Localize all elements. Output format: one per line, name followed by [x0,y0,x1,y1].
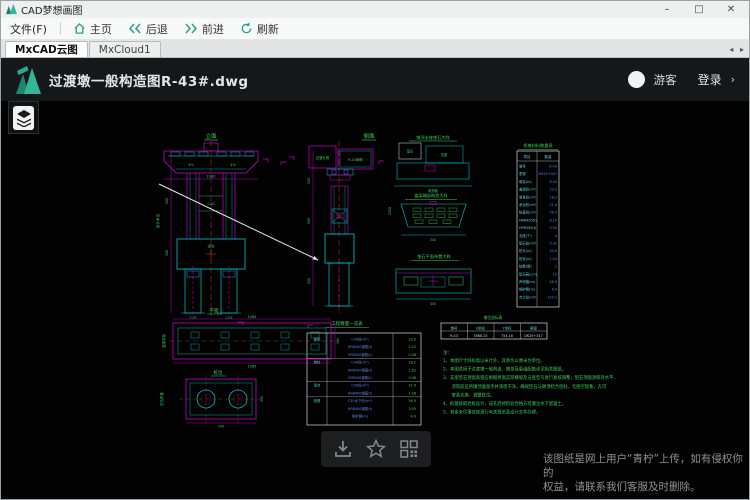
svg-text:X坐标: X坐标 [476,325,486,330]
svg-text:450: 450 [307,278,311,284]
svg-text:里程: 里程 [530,325,537,330]
svg-text:0.32: 0.32 [549,242,557,246]
svg-text:设计水位: 设计水位 [155,213,160,228]
svg-text:1060: 1060 [248,365,257,369]
forward-button[interactable]: 前进 [176,18,232,39]
qrcode-icon [398,438,420,460]
svg-text:盖梁平面: 盖梁平面 [161,334,166,348]
tab-mxcad-cloud[interactable]: MxCAD云图 [5,41,88,57]
refresh-button[interactable]: 刷新 [232,18,287,39]
qrcode-button[interactable] [397,437,421,461]
layers-icon [16,109,32,127]
svg-text:1.62: 1.62 [408,368,416,372]
copyright-notice: 该图纸是网上用户“青柠”上传，如有侵权你的 权益，请联系我们客服及时删除。 [543,452,743,494]
svg-text:1.28: 1.28 [408,391,416,395]
svg-text:C25: C25 [226,316,233,320]
svg-text:4: 4 [555,234,557,238]
svg-text:754.16: 754.16 [501,334,513,338]
svg-text:2、本图适用于过渡墩一般构造，墩身及基础配筋详见相关图纸。: 2、本图适用于过渡墩一般构造，墩身及基础配筋详见相关图纸。 [443,366,566,373]
forward-label: 前进 [202,21,224,37]
elevation-view: 立面 4% 4% 1080 [155,132,318,328]
svg-text:4.0: 4.0 [552,288,557,292]
svg-text:侧面: 侧面 [363,132,375,140]
svg-text:0.58: 0.58 [408,353,416,357]
svg-text:盖梁砼(m³): 盖梁砼(m³) [519,187,537,192]
svg-text:1、本图尺寸除标高以米计外，其余均以厘米为单位。: 1、本图尺寸除标高以米计外，其余均以厘米为单位。 [443,357,545,364]
svg-text:桩基: 桩基 [314,398,321,403]
svg-text:3.05: 3.05 [408,407,416,411]
svg-text:1.20: 1.20 [549,257,557,261]
svg-text:6.50: 6.50 [549,180,557,184]
svg-text:C30水下砼(m³): C30水下砼(m³) [348,398,373,403]
svg-text:墩柱: 墩柱 [314,360,321,365]
svg-text:DK25+347: DK25+347 [524,334,542,338]
home-label: 主页 [90,21,112,37]
svg-text:墩位坐标表: 墩位坐标表 [484,315,503,320]
svg-text:C40砼(m³): C40砼(m³) [351,337,369,342]
svg-text:24.0: 24.0 [549,249,557,253]
back-label: 后退 [146,21,168,37]
svg-text:钢护筒(m): 钢护筒(m) [519,287,536,292]
svg-text:注：: 注： [443,349,452,356]
app-logo-icon [6,4,17,15]
svg-text:HRB400钢筋(t): HRB400钢筋(t) [348,406,373,411]
svg-text:HRB400钢筋(t): HRB400钢筋(t) [348,367,373,372]
plan-views: 平面 1060 1060 160 盖梁平面 桩 [159,308,340,429]
svg-text:48.6: 48.6 [549,280,557,284]
svg-text:HRB400(t): HRB400(t) [519,218,537,222]
svg-text:160: 160 [336,338,340,344]
svg-text:墩身砼(m³): 墩身砼(m³) [519,194,537,199]
svg-text:8.10: 8.10 [549,218,557,222]
download-button[interactable] [331,437,355,461]
window-title: CAD梦想画图 [21,2,83,17]
svg-text:HRB400钢筋(t): HRB400钢筋(t) [348,344,373,349]
guest-label: 游客 [654,72,677,88]
app-window: CAD梦想画图 – □ ✕ 文件(F) 主页 后退 前进 [0,0,750,500]
svg-text:承台: 承台 [208,244,215,249]
svg-text:盖梁: 盖梁 [314,337,321,342]
avatar[interactable] [628,71,645,88]
svg-text:桩位: 桩位 [214,369,223,376]
minimize-button[interactable]: – [651,1,683,18]
svg-text:R-43: R-43 [549,165,557,169]
menu-bar: 文件(F) 主页 后退 前进 刷新 [1,18,749,39]
materials-table: 桥墩材料数量表 项目 数量 墩号R-43里程DK25+347墩高(m)6.50盖… [517,142,559,307]
maximize-button[interactable]: □ [683,1,715,18]
notes: 注： 1、本图尺寸除标高以米计外，其余均以厘米为单位。2、本图适用于过渡墩一般构… [443,349,618,416]
svg-text:承台砼(m³): 承台砼(m³) [519,202,537,207]
svg-text:4%: 4% [188,163,194,167]
tab-bar: MxCAD云图 MxCloud1 ◂ ▸ [1,39,749,58]
file-menu[interactable]: 文件(F) [1,18,56,39]
svg-text:23.5: 23.5 [408,338,416,342]
viewer-header: 过渡墩一般构造图R-43#.dwg 游客 登录 › [1,58,749,101]
copyright-line1: 该图纸是网上用户“青柠”上传，如有侵权你的 [543,452,743,480]
svg-text:500: 500 [307,218,311,224]
svg-text:700: 700 [218,425,224,429]
svg-text:3568.25: 3568.25 [473,334,487,338]
qty-table: 工程数量一览表 盖梁C40砼(m³)23.5HRB400钢筋(t)2.15HPB… [307,320,421,425]
svg-text:浇筑前应将墩顶面凿毛并清理干净，确保垫石与墩顶结合密贴、无脱: 浇筑前应将墩顶面凿毛并清理干净，确保垫石与墩顶结合密贴、无脱空现象，方可 [443,383,607,390]
forward-icon [184,22,198,35]
svg-text:0.36: 0.36 [408,376,416,380]
svg-text:1060: 1060 [248,315,257,319]
svg-text:支座: 支座 [441,152,448,157]
svg-text:盖梁端部构造大样: 盖梁端部构造大样 [414,192,448,199]
svg-text:垫石: 垫石 [407,149,413,154]
svg-text:桩长(m): 桩长(m) [519,248,532,253]
svg-text:声测管(m): 声测管(m) [519,279,536,284]
svg-text:400: 400 [430,302,436,306]
star-icon [365,438,387,460]
svg-text:数量: 数量 [544,154,552,159]
home-button[interactable]: 主页 [65,18,120,39]
favorite-button[interactable] [364,437,388,461]
download-icon [332,438,354,460]
close-button[interactable]: ✕ [715,1,747,18]
svg-text:HPB300钢筋(t): HPB300钢筋(t) [348,375,373,380]
svg-text:合计砼(m³): 合计砼(m³) [519,294,537,299]
svg-text:桥墩材料数量表: 桥墩材料数量表 [523,142,553,149]
file-name: 过渡墩一般构造图R-43#.dwg [49,70,249,90]
menu-separator [60,22,61,35]
detail-views: 墩顶支座垫石大样 垫石 支座 墩顶面 盖梁端部构造大样 [394,134,472,306]
svg-text:垫石砼(m³): 垫石砼(m³) [519,241,537,246]
svg-text:C40: C40 [208,202,215,206]
svg-text:500: 500 [165,198,169,204]
svg-text:4.0: 4.0 [411,415,416,419]
svg-text:21.6: 21.6 [408,384,416,388]
svg-text:4%: 4% [230,163,236,167]
mxcad-logo [15,65,43,95]
svg-text:DK25+347: DK25+347 [539,172,557,176]
layers-button[interactable] [8,101,39,134]
svg-text:240: 240 [430,238,436,242]
svg-text:4、桩基按嵌岩桩设计，成孔后经检验合格方可灌注水下混凝土。: 4、桩基按嵌岩桩设计，成孔后经检验合格方可灌注水下混凝土。 [443,400,566,407]
svg-text:1080: 1080 [207,175,216,179]
svg-text:10: 10 [553,272,557,276]
tab-mxcloud1[interactable]: MxCloud1 [89,41,161,57]
svg-text:项目: 项目 [523,154,530,159]
tab-scroll-arrows[interactable]: ◂ ▸ [729,45,746,54]
svg-text:桩基砼(m³): 桩基砼(m³) [519,210,537,215]
back-button[interactable]: 后退 [120,18,176,39]
svg-text:56.5: 56.5 [408,399,416,403]
side-view: 侧面 过渡孔侧 R-43墩侧 [289,132,392,313]
svg-text:56.5: 56.5 [549,211,557,215]
svg-text:350: 350 [260,396,264,402]
bottom-toolbar [321,431,431,467]
svg-text:C30砼(m³): C30砼(m³) [351,383,369,388]
svg-text:垫石平面布置大样: 垫石平面布置大样 [417,253,451,260]
svg-text:桩位布置: 桩位布置 [159,392,164,406]
svg-text:R-43墩侧: R-43墩侧 [348,157,363,162]
svg-text:Y坐标: Y坐标 [503,325,512,330]
svg-text:桩数(根): 桩数(根) [519,264,532,269]
svg-text:安装支座、调整就位。: 安装支座、调整就位。 [443,391,495,398]
back-icon [128,22,142,35]
svg-text:R-43: R-43 [450,334,458,338]
svg-text:垫石高(cm): 垫石高(cm) [519,271,538,276]
svg-text:23.5: 23.5 [549,188,557,192]
svg-text:墩号: 墩号 [451,325,458,330]
svg-text:21.6: 21.6 [549,203,557,207]
svg-text:承台: 承台 [314,383,321,388]
svg-text:120.1: 120.1 [547,295,557,299]
svg-text:2450: 2450 [388,207,392,215]
svg-text:C25: C25 [190,316,197,320]
svg-text:3、支座垫石顶面高程应根据桥面实际横坡及支座型号进行复核调整: 3、支座垫石顶面高程应根据桥面实际横坡及支座型号进行复核调整，垫石顶面须保持水平… [443,374,618,381]
svg-text:18.2: 18.2 [549,195,557,199]
svg-text:C40砼(m³): C40砼(m³) [351,360,369,365]
svg-text:工程数量一览表: 工程数量一览表 [331,320,363,327]
refresh-label: 刷新 [257,21,279,37]
title-bar: CAD梦想画图 – □ ✕ [1,1,749,18]
svg-text:0.94: 0.94 [549,226,557,230]
coord-table: 墩位坐标表 墩号X坐标Y坐标里程R-433568.25754.16DK25+34… [441,315,547,339]
svg-text:2.15: 2.15 [408,345,416,349]
svg-text:墩顶支座垫石大样: 墩顶支座垫石大样 [416,134,450,141]
refresh-icon [240,22,253,35]
svg-text:过渡孔侧: 过渡孔侧 [316,155,330,160]
svg-text:立面: 立面 [205,132,217,140]
svg-text:里程: 里程 [519,171,526,176]
svg-text:墩高(m): 墩高(m) [519,179,532,184]
login-arrow-icon: › [731,73,735,86]
svg-text:墩号: 墩号 [519,164,526,169]
svg-text:2: 2 [555,265,557,269]
svg-text:平面: 平面 [210,308,219,314]
svg-text:支座(个): 支座(个) [519,233,532,238]
svg-text:HRB400钢筋(t): HRB400钢筋(t) [348,390,373,395]
home-icon [73,22,86,35]
svg-text:300: 300 [165,250,169,256]
copyright-line2: 权益，请联系我们客服及时删除。 [543,480,743,494]
svg-text:5、其余未尽事宜按现行有关规范及设计文件办理。: 5、其余未尽事宜按现行有关规范及设计文件办理。 [443,409,540,416]
svg-text:HPB300(t): HPB300(t) [519,226,537,230]
svg-text:桩径(m): 桩径(m) [519,256,532,261]
svg-text:HPB300钢筋(t): HPB300钢筋(t) [348,352,373,357]
login-button[interactable]: 登录 [698,71,722,88]
svg-text:150: 150 [307,178,311,184]
svg-text:18.2: 18.2 [408,361,416,365]
svg-text:钢护筒(m): 钢护筒(m) [352,414,369,419]
